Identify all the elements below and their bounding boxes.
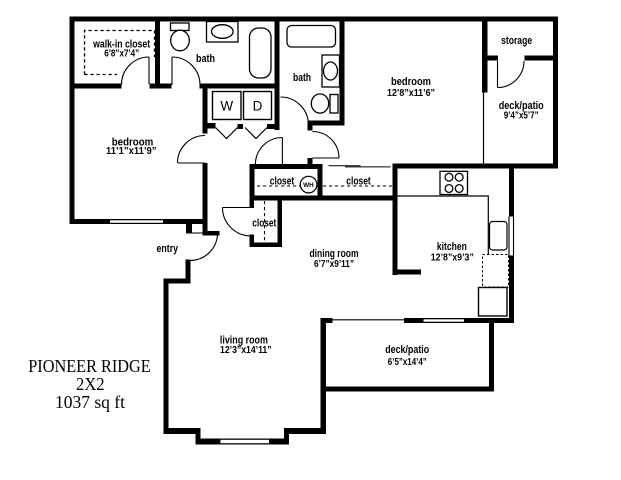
svg-text:D: D: [253, 99, 263, 114]
svg-text:dining room: dining room: [310, 248, 359, 260]
svg-text:2X2: 2X2: [76, 374, 105, 394]
svg-text:1037 sq ft: 1037 sq ft: [55, 392, 125, 412]
svg-text:storage: storage: [501, 35, 532, 47]
svg-text:12’3”x14’11”: 12’3”x14’11”: [220, 345, 272, 356]
svg-text:W: W: [220, 99, 233, 114]
svg-text:6’8”x7’4”: 6’8”x7’4”: [104, 49, 139, 60]
svg-text:deck/patio: deck/patio: [385, 344, 429, 356]
svg-text:6’5”x14’4”: 6’5”x14’4”: [388, 357, 427, 368]
svg-text:bedroom: bedroom: [391, 76, 431, 88]
svg-text:12’8”x11’6”: 12’8”x11’6”: [387, 88, 435, 99]
svg-text:closet: closet: [270, 176, 295, 188]
svg-text:closet: closet: [346, 176, 371, 188]
svg-text:entry: entry: [157, 243, 179, 255]
svg-text:12’8”x9’3”: 12’8”x9’3”: [431, 252, 474, 263]
svg-text:WH: WH: [303, 182, 314, 189]
svg-text:closet: closet: [252, 218, 276, 230]
svg-text:kitchen: kitchen: [437, 241, 467, 253]
svg-text:bath: bath: [293, 72, 311, 84]
svg-text:6’7”x9’11”: 6’7”x9’11”: [314, 259, 354, 270]
svg-text:11’1”x11’9”: 11’1”x11’9”: [106, 146, 157, 157]
svg-text:9’4”x5’7”: 9’4”x5’7”: [504, 110, 539, 121]
svg-text:bath: bath: [196, 53, 215, 65]
